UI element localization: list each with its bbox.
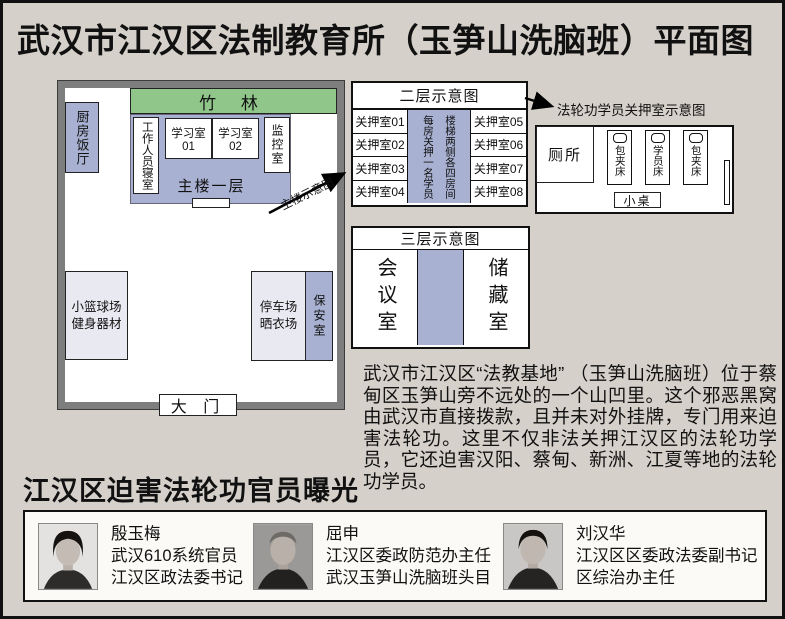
official-name: 殷玉梅 — [111, 523, 243, 545]
page-title: 武汉市江汉区法制教育所（玉笋山洗脑班）平面图 — [17, 14, 777, 62]
detention-room-07: 关押室07 — [470, 157, 526, 181]
portrait-photo — [253, 523, 313, 590]
cell-diagram-arrow — [525, 98, 551, 106]
floor2-body: 关押室01 关押室02 关押室03 关押室04 楼梯两侧各四房间 每房关押一名学… — [353, 110, 526, 203]
official-info: 刘汉华 江汉区区委政法委副书记 区综治办主任 — [576, 523, 758, 590]
official-title-1: 江汉区委政防范办主任 — [326, 545, 491, 567]
compound-site-plan: 竹 林 厨房饭厅 工作人员寝室 学习室01 学习室02 监控室 主楼一层 小篮球… — [58, 81, 344, 409]
stairwell-note-col1: 楼梯两侧各四房间 — [439, 115, 461, 199]
study-room-02: 学习室02 — [212, 118, 259, 159]
parking-label-line1: 停车场 — [260, 299, 298, 316]
study-room-01: 学习室01 — [165, 118, 212, 159]
student-bed: 学员床 — [645, 130, 670, 185]
cell-door — [724, 160, 730, 205]
storage-room-label: 储藏室 — [486, 257, 506, 338]
floor3-title: 三层示意图 — [353, 228, 528, 250]
detention-room-06: 关押室06 — [470, 134, 526, 158]
monitoring-room-label: 监控室 — [271, 124, 283, 166]
detention-room-08: 关押室08 — [470, 181, 526, 204]
parking-label: 停车场 晒衣场 — [260, 299, 298, 333]
parking-label-line2: 晒衣场 — [260, 316, 298, 333]
staff-dorm-room: 工作人员寝室 — [133, 117, 159, 194]
main-gate: 大 门 — [159, 394, 237, 416]
basketball-label-line1: 小篮球场 — [71, 299, 121, 316]
official-title-2: 武汉玉笋山洗脑班头目 — [326, 567, 491, 589]
meeting-room-label: 会议室 — [375, 257, 395, 338]
parking-drying-area: 停车场 晒衣场 — [251, 271, 306, 361]
minder-bed-right-label: 包夹床 — [690, 145, 701, 177]
toilet-room: 厕所 — [536, 126, 594, 183]
official-info: 屈申 江汉区委政防范办主任 武汉玉笋山洗脑班头目 — [326, 523, 491, 590]
pillow-icon — [613, 133, 627, 143]
detention-room-03: 关押室03 — [353, 157, 408, 181]
floor2-left-column: 关押室01 关押室02 关押室03 关押室04 — [353, 110, 408, 203]
kitchen-dining-room: 厨房饭厅 — [65, 102, 99, 173]
monitoring-room: 监控室 — [264, 117, 290, 173]
cell-diagram-title: 法轮功学员关押室示意图 — [557, 99, 706, 119]
floor2-stairwell: 楼梯两侧各四房间 每房关押一名学员 — [408, 110, 470, 203]
floor2-diagram: 二层示意图 关押室01 关押室02 关押室03 关押室04 楼梯两侧各四房间 每… — [351, 81, 528, 207]
official-title-1: 武汉610系统官员 — [111, 545, 243, 567]
detention-room-04: 关押室04 — [353, 181, 408, 204]
student-bed-label: 学员床 — [652, 145, 663, 177]
security-room: 保安室 — [305, 271, 333, 361]
basketball-fitness-area: 小篮球场 健身器材 — [65, 271, 128, 360]
bamboo-grove-area: 竹 林 — [130, 88, 337, 114]
officials-box: 殷玉梅 武汉610系统官员 江汉区政法委书记 屈申 江汉区委政防范办主任 武汉玉… — [23, 510, 767, 602]
staff-dorm-label: 工作人员寝室 — [140, 121, 152, 190]
official-card-liu-hanhua: 刘汉华 江汉区区委政法委副书记 区综治办主任 — [503, 523, 758, 590]
basketball-label-line2: 健身器材 — [71, 316, 121, 333]
main-building-floor1-label: 主楼一层 — [161, 175, 262, 196]
storage-room: 储藏室 — [464, 250, 528, 345]
detention-room-05: 关押室05 — [470, 110, 526, 134]
kitchen-dining-label: 厨房饭厅 — [76, 110, 89, 166]
description-paragraph: 武汉市江汉区“法教基地” （玉笋山洗脑班）位于蔡甸区玉笋山旁不远处的一个山凹里。… — [363, 363, 777, 492]
official-name: 刘汉华 — [576, 523, 758, 545]
meeting-room: 会议室 — [353, 250, 417, 345]
security-room-label: 保安室 — [313, 294, 325, 339]
officials-heading: 江汉区迫害法轮功官员曝光 — [23, 469, 359, 508]
portrait-photo — [38, 523, 98, 590]
official-info: 殷玉梅 武汉610系统官员 江汉区政法委书记 — [111, 523, 243, 590]
poster-root: 武汉市江汉区法制教育所（玉笋山洗脑班）平面图 竹 林 厨房饭厅 工作人员寝室 学… — [0, 0, 785, 619]
cell-diagram: 厕所 包夹床 学员床 包夹床 小桌 — [535, 125, 734, 214]
detention-room-01: 关押室01 — [353, 110, 408, 134]
minder-bed-left-label: 包夹床 — [614, 145, 625, 177]
floor3-stairwell — [417, 250, 464, 345]
basketball-label: 小篮球场 健身器材 — [71, 299, 121, 333]
floor2-right-column: 关押室05 关押室06 关押室07 关押室08 — [470, 110, 526, 203]
floor3-diagram: 三层示意图 会议室 储藏室 — [351, 226, 530, 349]
official-title-2: 区综治办主任 — [576, 567, 758, 589]
minder-bed-right: 包夹床 — [683, 130, 708, 185]
main-building-floor1: 工作人员寝室 学习室01 学习室02 监控室 主楼一层 — [130, 114, 291, 204]
official-card-qu-shen: 屈申 江汉区委政防范办主任 武汉玉笋山洗脑班头目 — [253, 523, 491, 590]
portrait-photo — [503, 523, 563, 590]
pillow-icon — [651, 133, 665, 143]
detention-room-02: 关押室02 — [353, 134, 408, 158]
official-title-1: 江汉区区委政法委副书记 — [576, 545, 758, 567]
small-table: 小桌 — [614, 192, 661, 208]
floor2-title: 二层示意图 — [353, 83, 526, 110]
minder-bed-left: 包夹床 — [607, 130, 632, 185]
official-title-2: 江汉区政法委书记 — [111, 567, 243, 589]
building-entrance — [192, 198, 230, 208]
stairwell-note-col2: 每房关押一名学员 — [417, 115, 439, 199]
official-card-yin-yumei: 殷玉梅 武汉610系统官员 江汉区政法委书记 — [38, 523, 243, 590]
stairwell-note: 楼梯两侧各四房间 每房关押一名学员 — [417, 115, 461, 199]
floor3-body: 会议室 储藏室 — [353, 250, 528, 345]
pillow-icon — [689, 133, 703, 143]
official-name: 屈申 — [326, 523, 491, 545]
